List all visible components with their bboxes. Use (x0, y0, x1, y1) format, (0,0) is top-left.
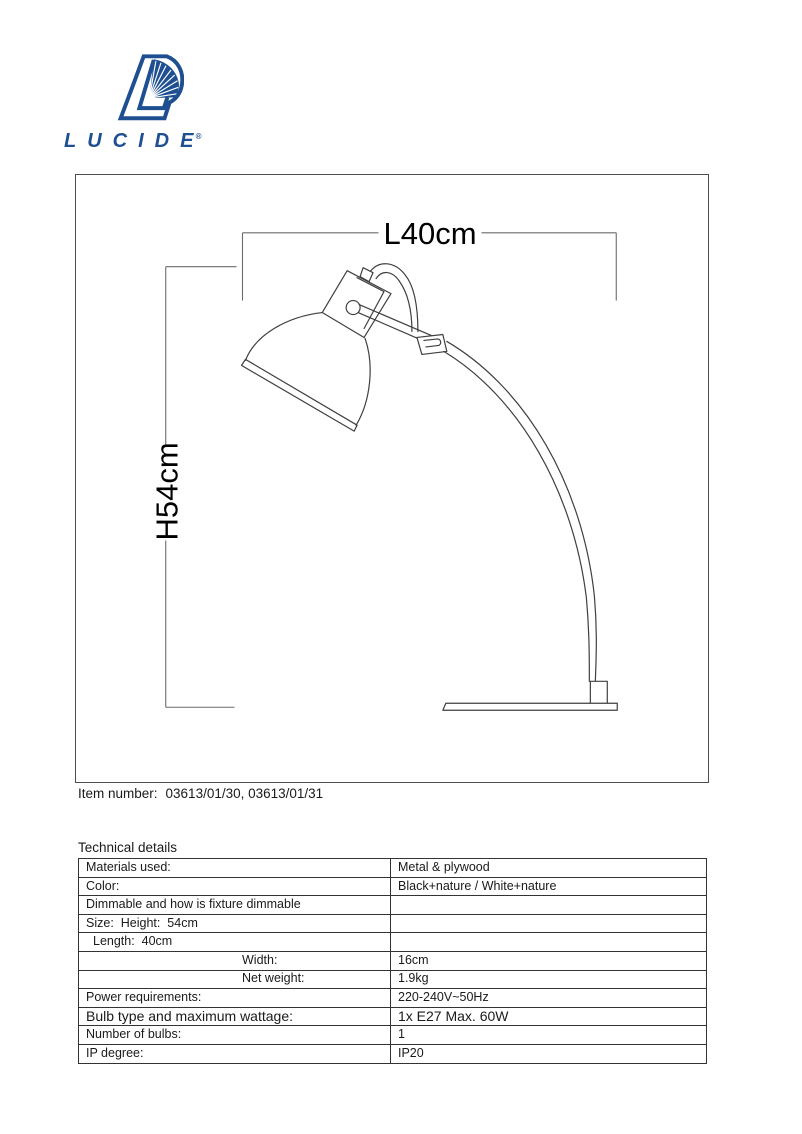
table-row: Length: 40cm (79, 933, 707, 952)
spec-label-cell: Width: (79, 951, 391, 970)
spec-label-cell: Materials used: (79, 859, 391, 878)
height-dimension-label: H54cm (149, 445, 186, 541)
spec-label-cell: Length: 40cm (79, 933, 391, 952)
table-row: Color: Black+nature / White+nature (79, 877, 707, 896)
spec-label-cell: Net weight: (79, 970, 391, 989)
item-number-label: Item number: (78, 786, 158, 801)
spec-label-cell: Bulb type and maximum wattage: (79, 1007, 391, 1026)
spec-value-cell (391, 933, 707, 952)
technical-drawing-frame: L40cm H54cm (75, 174, 709, 783)
technical-details-title: Technical details (78, 840, 177, 855)
spec-value-cell: 1.9kg (391, 970, 707, 989)
spec-value-cell: 1x E27 Max. 60W (391, 1007, 707, 1026)
spec-label-cell: Size: Height: 54cm (79, 914, 391, 933)
spec-value-cell (391, 914, 707, 933)
spec-value-cell (391, 896, 707, 915)
spec-label-cell: Power requirements: (79, 989, 391, 1008)
item-number-line: Item number:03613/01/30, 03613/01/31 (78, 786, 323, 801)
spec-label-cell: IP degree: (79, 1044, 391, 1063)
lamp-outline (241, 264, 617, 710)
technical-details-table-body: Materials used: Metal & plywood Color: B… (79, 859, 707, 1064)
spec-sheet-page: { "logo": { "brand": "LUCIDE", "register… (0, 0, 802, 1134)
table-row: Net weight: 1.9kg (79, 970, 707, 989)
spec-value-cell: Metal & plywood (391, 859, 707, 878)
spec-value-cell: 1 (391, 1026, 707, 1045)
registered-mark: ® (195, 132, 212, 141)
spec-value-cell: IP20 (391, 1044, 707, 1063)
spec-value-cell: 220-240V~50Hz (391, 989, 707, 1008)
table-row: Materials used: Metal & plywood (79, 859, 707, 878)
table-row: Number of bulbs: 1 (79, 1026, 707, 1045)
table-row: IP degree: IP20 (79, 1044, 707, 1063)
spec-value-cell: 16cm (391, 951, 707, 970)
spec-label-cell: Color: (79, 877, 391, 896)
table-row: Power requirements: 220-240V~50Hz (79, 989, 707, 1008)
table-row: Size: Height: 54cm (79, 914, 707, 933)
technical-details-table: Materials used: Metal & plywood Color: B… (78, 858, 707, 1064)
lucide-wordmark: LUCIDE® (64, 130, 214, 153)
table-row: Dimmable and how is fixture dimmable (79, 896, 707, 915)
spec-value-cell: Black+nature / White+nature (391, 877, 707, 896)
spec-label-cell: Number of bulbs: (79, 1026, 391, 1045)
table-row: Bulb type and maximum wattage: 1x E27 Ma… (79, 1007, 707, 1026)
table-row: Width: 16cm (79, 951, 707, 970)
lucide-logo-icon (112, 50, 184, 126)
spec-label-cell: Dimmable and how is fixture dimmable (79, 896, 391, 915)
item-number-value: 03613/01/30, 03613/01/31 (166, 786, 324, 801)
length-dimension-label: L40cm (378, 215, 481, 252)
lucide-logo: LUCIDE® (64, 50, 214, 153)
